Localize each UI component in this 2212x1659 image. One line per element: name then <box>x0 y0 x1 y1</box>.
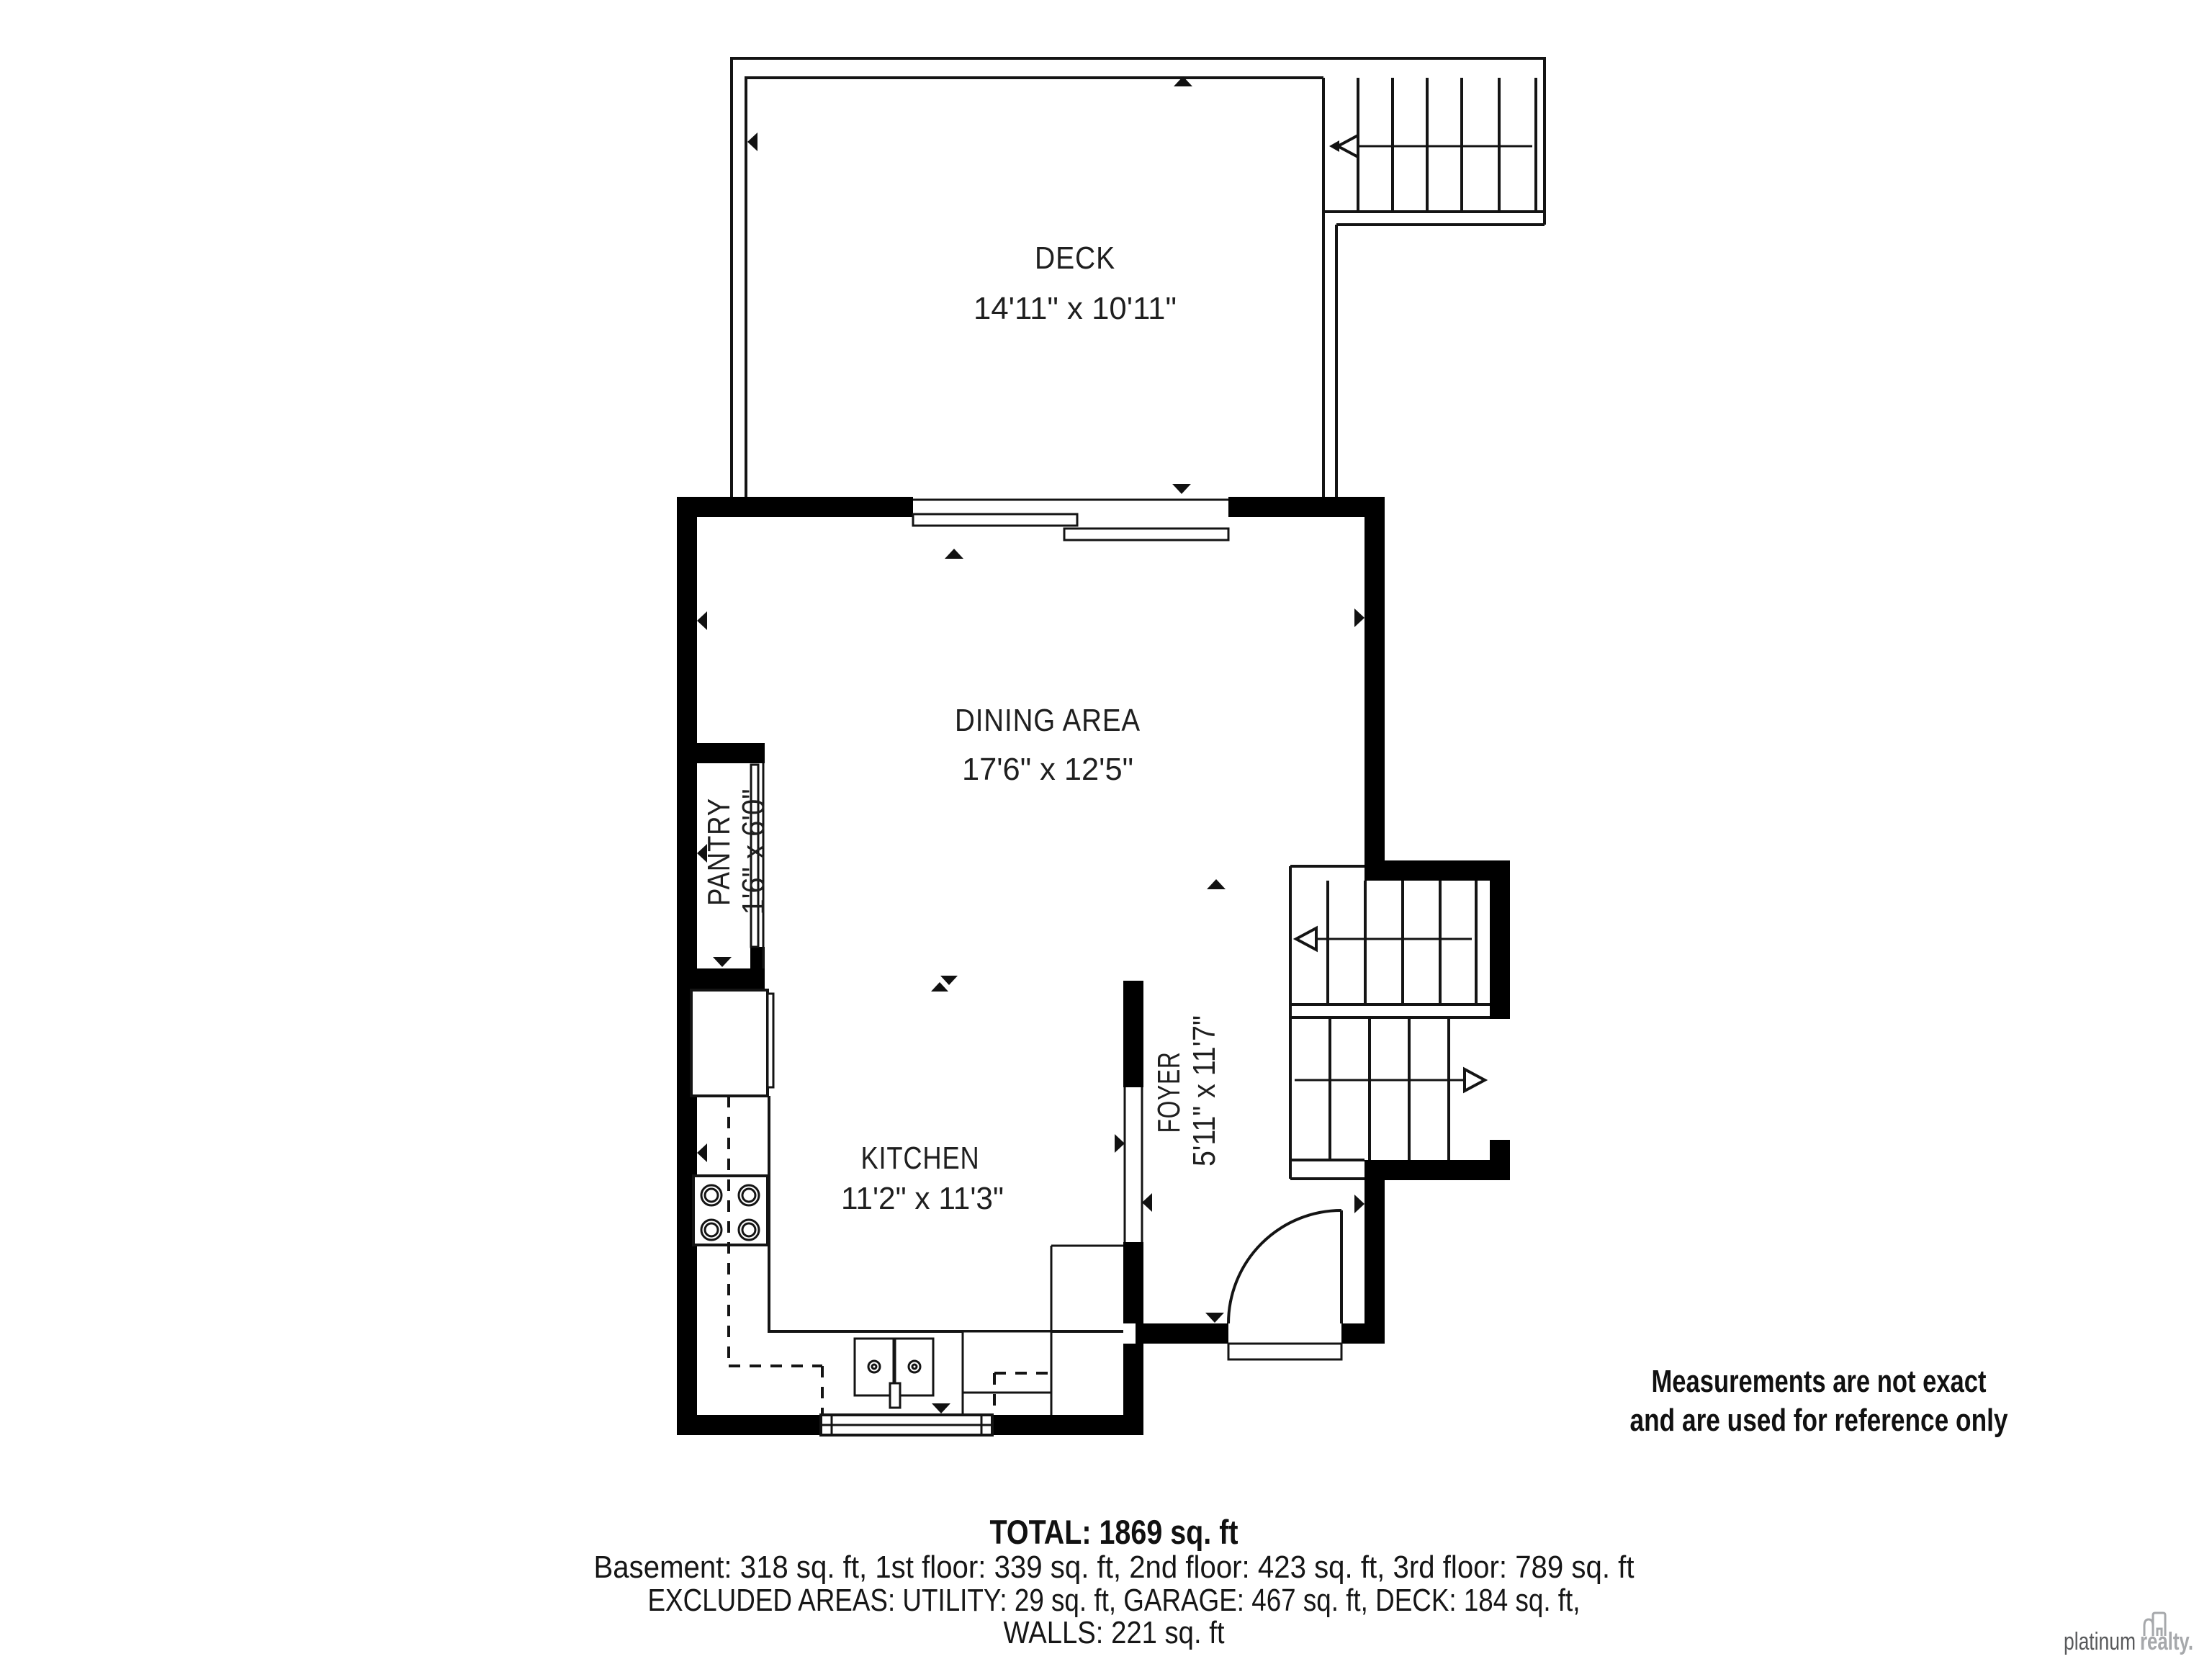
room-label-dining: DINING AREA <box>955 703 1141 738</box>
arrow-left-kitchen-wall-icon <box>697 1143 707 1162</box>
sliding-door-panel-a <box>913 514 1077 526</box>
arrow-left-dining-wall-icon <box>697 611 707 630</box>
wall-kitchen-foyer-lower <box>1123 1242 1143 1323</box>
wall-foyer-bottom-right <box>1341 1323 1385 1344</box>
wall-stair-top <box>1364 860 1510 881</box>
room-label-foyer: FOYER <box>1151 1052 1187 1133</box>
arrow-right-opening-icon <box>1115 1134 1125 1153</box>
dishwasher <box>963 1331 1051 1393</box>
room-dims-pantry: 1'6" x 6'0" <box>736 789 771 915</box>
disclaimer-line1: Measurements are not exact <box>1652 1364 1987 1399</box>
brand-word2: realty. <box>2140 1628 2193 1655</box>
stair-up-arrow-icon <box>1296 928 1316 950</box>
disclaimer: Measurements are not exact and are used … <box>1630 1364 2008 1438</box>
wall-kitchen-bottom-right <box>992 1415 1143 1435</box>
refrigerator-side-panel <box>768 994 773 1087</box>
room-dims-dining: 17'6" x 12'5" <box>962 752 1133 787</box>
wall-top-left <box>677 497 913 517</box>
walls <box>677 497 1510 1435</box>
room-dims-deck: 14'11" x 10'11" <box>974 291 1177 326</box>
arrow-pair-up-icon <box>931 982 948 992</box>
summary-walls: WALLS: 221 sq. ft <box>1004 1615 1225 1650</box>
wall-stair-right <box>1490 881 1510 1019</box>
refrigerator <box>691 990 768 1096</box>
disclaimer-line2: and are used for reference only <box>1630 1403 2008 1438</box>
arrow-up-dining-icon <box>945 549 963 559</box>
arrow-left-deck-rail-icon <box>747 132 757 151</box>
wall-top-right <box>1228 497 1385 517</box>
stair-down-arrow-icon <box>1465 1069 1485 1091</box>
area-summary: TOTAL: 1869 sq. ft Basement: 318 sq. ft,… <box>594 1513 1635 1650</box>
brand-word1: platinum <box>2064 1628 2136 1655</box>
room-label-deck: DECK <box>1035 240 1115 276</box>
arrow-down-entry-door-icon <box>1205 1313 1224 1323</box>
kitchen-foyer-opening <box>1125 1087 1142 1242</box>
stove <box>693 1176 768 1245</box>
floor-plan: DECK 14'11" x 10'11" DINING AREA 17'6" x… <box>0 0 2212 1659</box>
room-dims-kitchen: 11'2" x 11'3" <box>841 1181 1004 1216</box>
entry-door <box>1228 1210 1341 1359</box>
deck-outline <box>732 58 1545 497</box>
kitchen-window <box>821 1415 992 1435</box>
deck-stair-arrow-tip-icon <box>1329 140 1339 152</box>
deck-stair-arrow-icon <box>1338 135 1358 157</box>
entry-door-threshold <box>1228 1344 1341 1359</box>
arrow-right-dining-wall-icon <box>1354 608 1364 627</box>
wall-kitchen-bottom-left <box>677 1415 821 1435</box>
wall-stair-right-stub <box>1490 1140 1510 1160</box>
arrow-up-stairs-icon <box>1207 879 1226 889</box>
arrow-down-window-icon <box>932 1403 950 1413</box>
wall-pantry-bottom <box>677 968 765 989</box>
wall-right-upper <box>1364 497 1385 881</box>
entry-door-swing-arc <box>1228 1210 1341 1323</box>
arrow-down-sliding-door-icon <box>1172 484 1191 494</box>
wall-pantry-top <box>677 743 765 763</box>
floor-plan-page: DECK 14'11" x 10'11" DINING AREA 17'6" x… <box>0 0 2212 1659</box>
room-dims-foyer: 5'11" x 11'7" <box>1187 1015 1222 1166</box>
deck-sliding-door <box>913 500 1228 540</box>
wall-kitchen-foyer-upper <box>1123 981 1143 1087</box>
wall-left <box>677 497 697 1435</box>
arrow-down-pantry-icon <box>713 957 732 967</box>
wall-foyer-right <box>1364 1180 1385 1344</box>
arrow-pair-down-icon <box>940 976 958 985</box>
sink-basin-left <box>855 1339 894 1395</box>
summary-floors: Basement: 318 sq. ft, 1st floor: 339 sq.… <box>594 1550 1635 1585</box>
sink <box>855 1339 933 1408</box>
brand-logo: platinum realty. <box>2064 1613 2193 1655</box>
marker-arrows <box>697 76 1364 1413</box>
room-label-pantry: PANTRY <box>701 798 737 906</box>
room-labels: DECK 14'11" x 10'11" DINING AREA 17'6" x… <box>701 240 1222 1216</box>
room-label-kitchen: KITCHEN <box>861 1141 980 1176</box>
deck-rail-outer <box>732 58 1545 497</box>
wall-stair-bottom <box>1364 1160 1510 1180</box>
faucet <box>890 1383 900 1408</box>
summary-total: TOTAL: 1869 sq. ft <box>990 1513 1238 1551</box>
stove-body <box>693 1176 768 1245</box>
deck-rail-inner <box>746 78 1323 497</box>
summary-excluded: EXCLUDED AREAS: UTILITY: 29 sq. ft, GARA… <box>648 1583 1581 1618</box>
arrow-right-foyer-wall-icon <box>1354 1195 1364 1213</box>
deck-stairs <box>1329 78 1536 212</box>
sliding-door-panel-b <box>1064 529 1228 540</box>
interior-stairs <box>1290 866 1490 1179</box>
wall-foyer-bottom-left <box>1136 1323 1228 1344</box>
arrow-left-opening-icon <box>1142 1193 1152 1212</box>
